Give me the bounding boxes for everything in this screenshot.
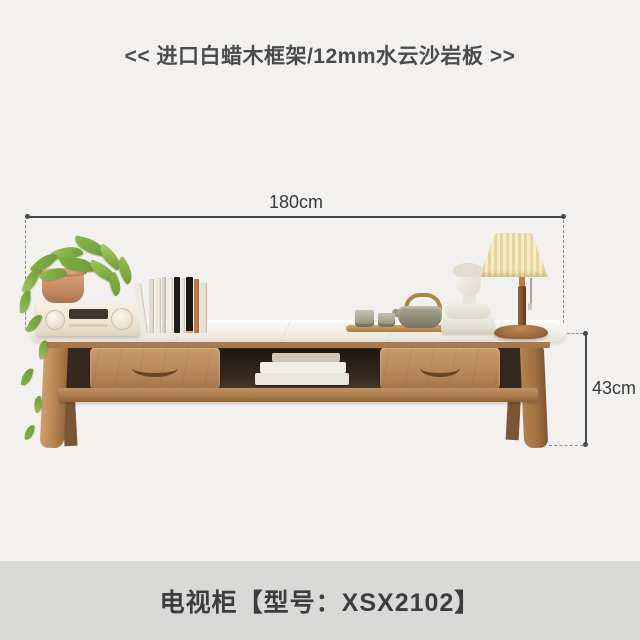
dimension-guide-bottom: [549, 445, 583, 446]
stacked-book: [255, 373, 349, 385]
stacked-book: [260, 362, 346, 373]
tea-cup: [355, 310, 374, 327]
product-image: << 进口白蜡木框架/12mm水云沙岩板 >> 180cm 43cm ↕ 40c…: [0, 0, 640, 640]
receiver-vent: [69, 324, 108, 327]
plant-leaf: [24, 425, 34, 441]
tv-stand-bottom-rail: [58, 388, 538, 402]
header-title: << 进口白蜡木框架/12mm水云沙岩板 >>: [0, 40, 640, 70]
book-spine: [149, 279, 155, 333]
dimension-height-label: 43cm: [592, 378, 636, 399]
dimension-guide-right: [563, 220, 564, 333]
dimension-endpoint-dot: [583, 331, 588, 336]
book-spine: [186, 277, 193, 333]
lamp-pull-chain-knob: [528, 303, 532, 310]
lamp-pull-chain: [530, 278, 532, 304]
dimension-endpoint-dot: [561, 214, 566, 219]
receiver-knob: [45, 310, 65, 330]
bust-hair: [453, 263, 483, 277]
drawer-handle: [132, 359, 178, 377]
book-spine: [194, 279, 200, 333]
book-row: [141, 277, 207, 333]
drawer-handle: [420, 359, 460, 377]
audio-receiver: [36, 302, 140, 336]
book-spine: [155, 278, 161, 333]
tea-cup: [378, 313, 395, 327]
tv-stand-right-drawer: [380, 347, 500, 390]
dimension-width-label: 180cm: [27, 192, 565, 213]
dimension-endpoint-dot: [583, 442, 588, 447]
receiver-knob: [111, 308, 133, 330]
book-spine: [174, 277, 180, 333]
lamp-stem: [518, 286, 526, 328]
plant-leaf: [18, 291, 32, 314]
book-spine: [167, 278, 173, 333]
receiver-display: [69, 309, 108, 319]
dimension-guide-left: [25, 220, 26, 330]
dimension-width-line: [27, 216, 565, 218]
footer-bar: 电视柜【型号：XSX2102】: [0, 561, 640, 640]
product-model-label: 电视柜【型号：XSX2102】: [160, 583, 481, 619]
book-spine: [181, 278, 186, 333]
book-spine: [162, 277, 167, 333]
lamp-base: [494, 325, 548, 339]
lamp-shade: [479, 233, 548, 277]
plant-leaf: [21, 367, 34, 386]
tv-stand-left-drawer: [90, 347, 220, 390]
dimension-height-line: [585, 334, 587, 444]
dimension-endpoint-dot: [25, 214, 30, 219]
book-spine: [200, 283, 207, 333]
stacked-book: [272, 353, 340, 362]
teapot: [398, 306, 442, 328]
dimension-guide-top: [567, 333, 583, 334]
